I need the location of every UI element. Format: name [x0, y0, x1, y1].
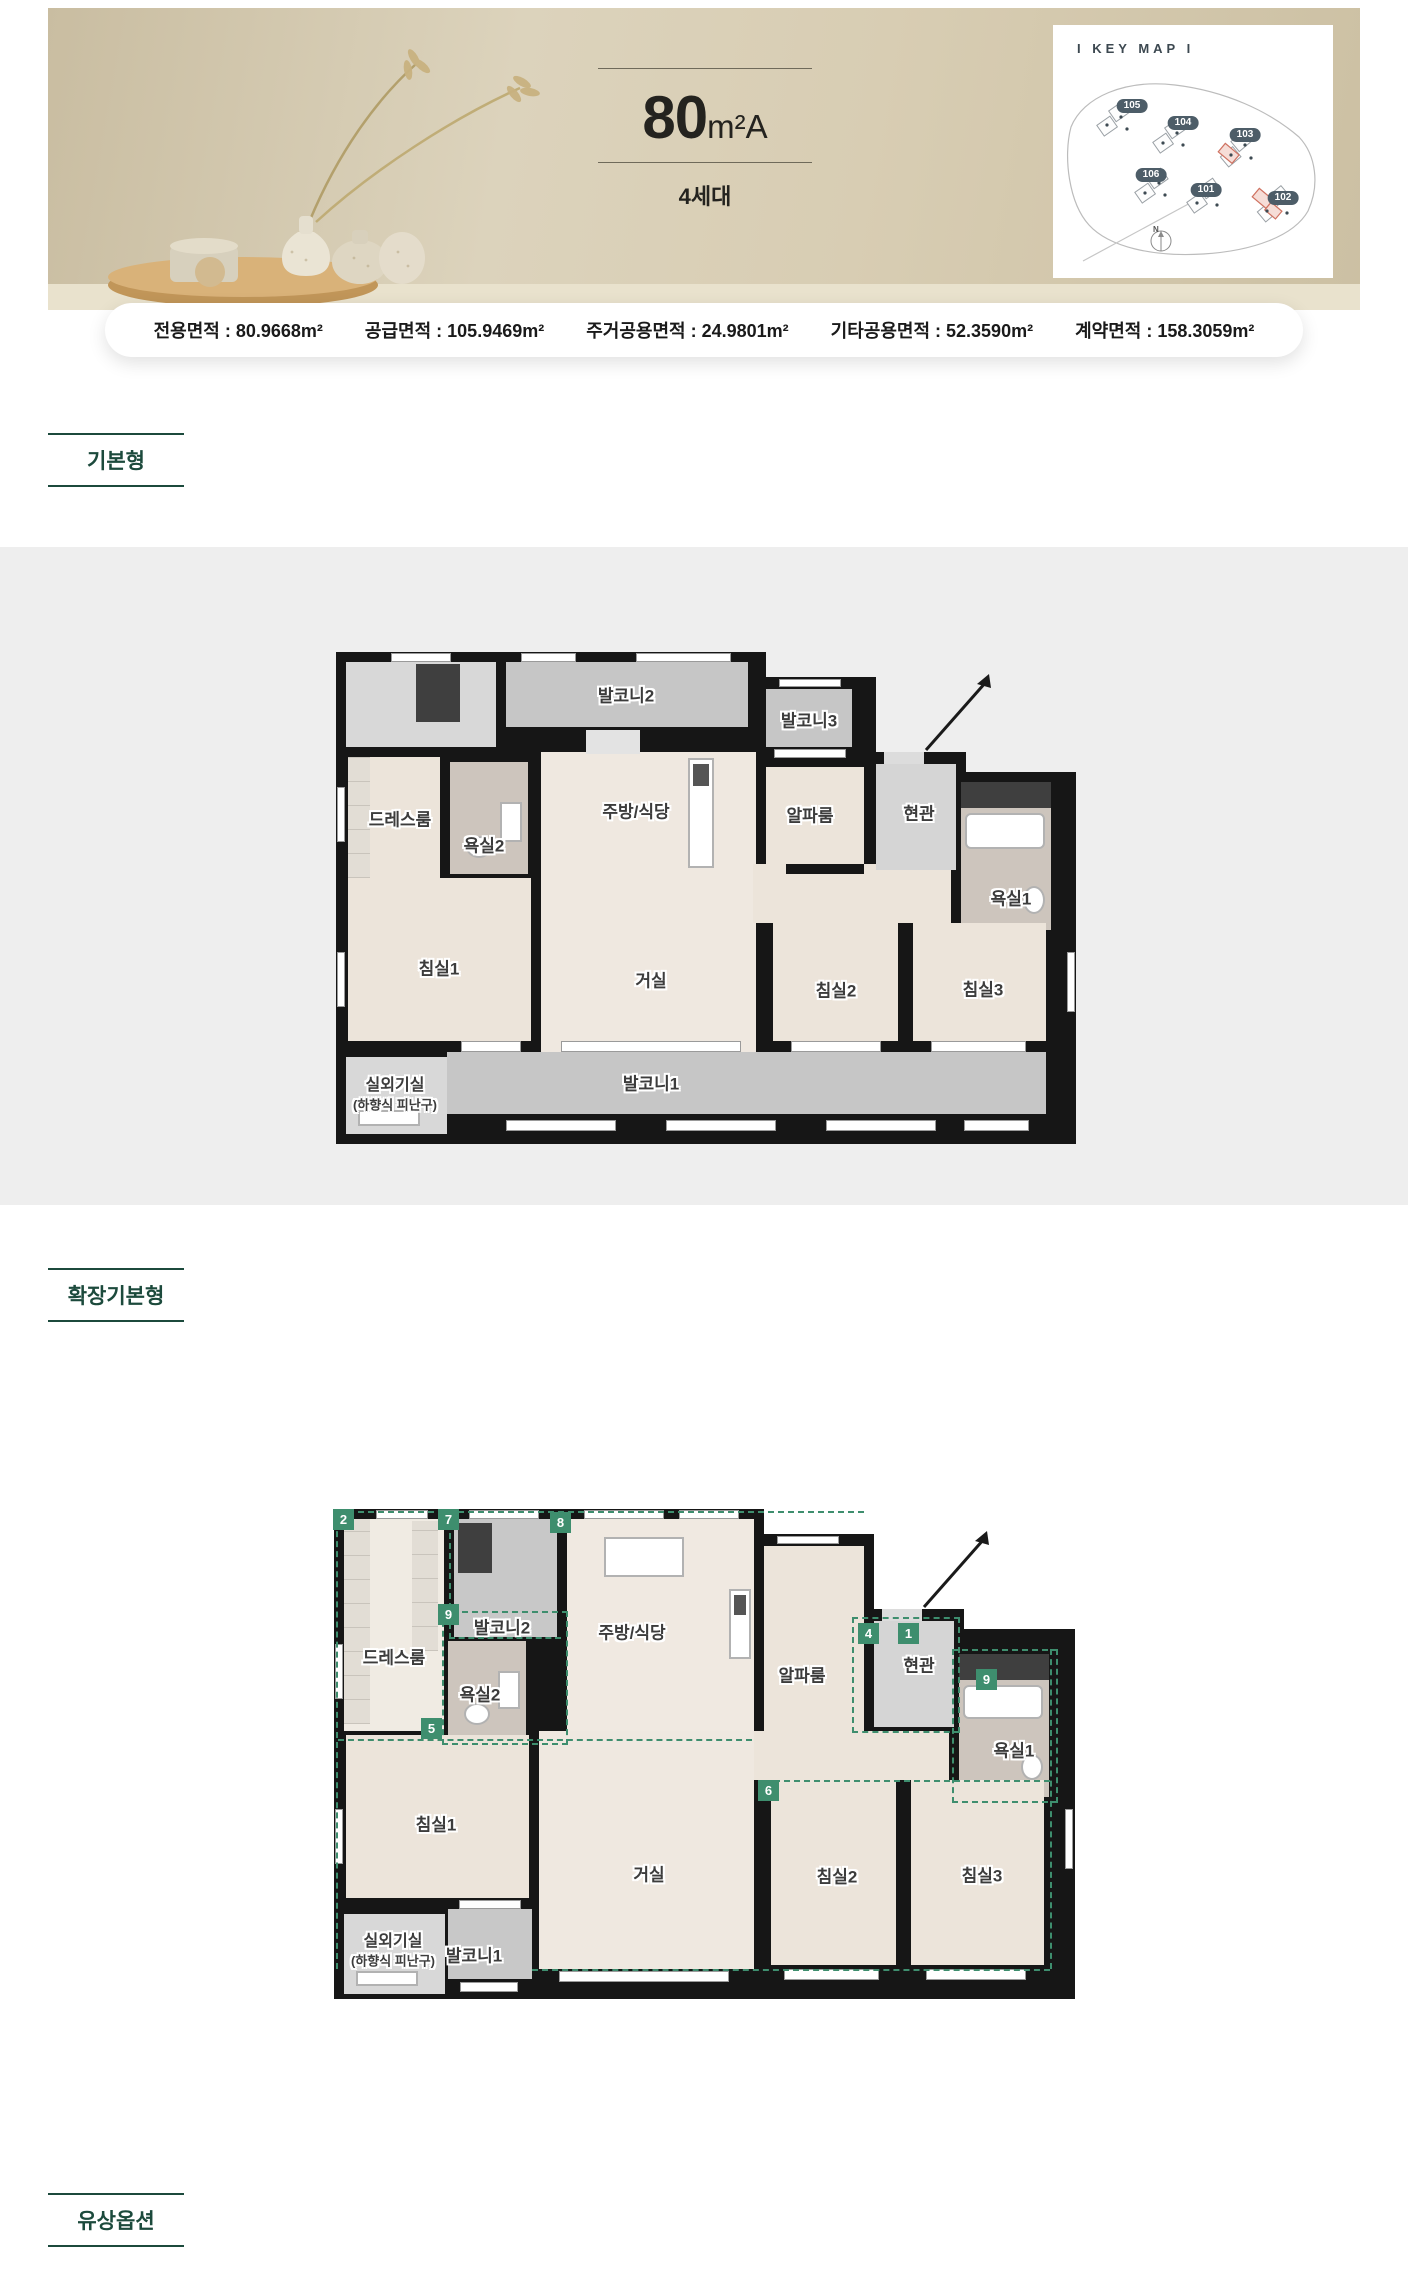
- room-label-balcony3: 발코니3: [781, 707, 837, 732]
- room-label-bed3: 침실3: [962, 1862, 1003, 1887]
- room-label-outdoor-unit: 실외기실: [366, 1071, 425, 1095]
- window: [931, 1041, 1026, 1052]
- option-badge: 5: [421, 1718, 442, 1739]
- closet-box: [961, 782, 1051, 808]
- room-label-bed1: 침실1: [416, 1811, 457, 1836]
- closet-box: [458, 1523, 492, 1573]
- option-badge: 4: [858, 1623, 879, 1644]
- title-divider-bottom: [598, 162, 812, 163]
- window: [666, 1120, 776, 1131]
- floor-plan-extended: 2 7 8 9 5 4 1 9 6 드레스룸 발코니2 주방/식당 욕실2 알파…: [334, 1509, 1075, 2009]
- window: [774, 749, 846, 758]
- window: [826, 1120, 936, 1131]
- bathtub-fixture: [965, 813, 1045, 849]
- compass-north-label: N: [1153, 225, 1159, 234]
- room-bath2: [450, 762, 528, 874]
- room-label-kitchen: 주방/식당: [598, 1619, 665, 1644]
- room-label-living: 거실: [633, 1861, 664, 1886]
- window: [559, 1971, 729, 1982]
- balcony-door-opening: [586, 730, 640, 754]
- window: [459, 1900, 521, 1909]
- unit-size-number: 80: [642, 84, 707, 151]
- building-badge-104: 104: [1168, 116, 1199, 130]
- window: [460, 1982, 518, 1992]
- room-label-bed2: 침실2: [816, 977, 857, 1002]
- key-map-title: I KEY MAP I: [1077, 41, 1194, 56]
- expansion-dashed-box: [442, 1611, 568, 1745]
- unit-type-title: 80m²A: [598, 69, 812, 162]
- room-alpha: [764, 1546, 864, 1731]
- room-label-balcony1: 발코니1: [446, 1942, 502, 1967]
- entrance-arrow-icon: [881, 670, 1021, 755]
- area-item-shared-residential: 주거공용면적 : 24.9801m²: [586, 317, 788, 343]
- room-label-bath2: 욕실2: [464, 832, 505, 857]
- expansion-dashed-line: [764, 1780, 1050, 1782]
- room-label-entry: 현관: [903, 800, 934, 825]
- section-label-basic: 기본형: [48, 433, 184, 487]
- room-label-bed1: 침실1: [419, 955, 460, 980]
- option-badge: 9: [438, 1604, 459, 1625]
- expansion-dashed-line: [532, 1969, 1050, 1971]
- header-photo: 80m²A 4세대 I KEY MAP I: [48, 8, 1360, 310]
- entrance-arrow-icon: [879, 1527, 1019, 1612]
- room-label-alpha: 알파룸: [779, 1662, 826, 1687]
- unit-size-suffix: m²A: [707, 108, 768, 145]
- option-badge: 9: [976, 1669, 997, 1690]
- closet-strip: [344, 1519, 370, 1724]
- area-item-supply: 공급면적 : 105.9469m²: [365, 317, 544, 343]
- window: [777, 1536, 839, 1544]
- room-label-balcony2: 발코니2: [598, 682, 654, 707]
- option-badge: 2: [333, 1509, 354, 1530]
- room-bath1: [961, 808, 1051, 930]
- room-label-living: 거실: [635, 967, 666, 992]
- window: [791, 1041, 881, 1052]
- household-count: 4세대: [598, 179, 812, 211]
- section-label-paid-option: 유상옵션: [48, 2193, 184, 2247]
- room-label-bath1: 욕실1: [991, 885, 1032, 910]
- room-label-bed2: 침실2: [817, 1863, 858, 1888]
- room-label-dressroom: 드레스룸: [369, 806, 432, 831]
- area-item-shared-other: 기타공용면적 : 52.3590m²: [831, 317, 1033, 343]
- window: [779, 679, 841, 687]
- window: [506, 1120, 616, 1131]
- room-closet-area: [346, 662, 496, 747]
- stove-fixture: [734, 1595, 746, 1615]
- room-label-outdoor-unit: 실외기실: [364, 1927, 423, 1951]
- option-badge: 6: [758, 1780, 779, 1801]
- room-label-bed3: 침실3: [963, 976, 1004, 1001]
- building-badge-105: 105: [1117, 99, 1148, 113]
- building-badge-102: 102: [1268, 191, 1299, 205]
- room-label-alpha: 알파룸: [787, 802, 834, 827]
- hallway: [751, 1731, 949, 1780]
- room-label-kitchen: 주방/식당: [602, 798, 669, 823]
- window: [337, 787, 345, 842]
- building-badge-101: 101: [1191, 183, 1222, 197]
- room-label-balcony1: 발코니1: [623, 1070, 679, 1095]
- closet-box: [416, 664, 460, 722]
- expansion-dashed-line: [338, 1739, 752, 1741]
- floor-plan-basic: 발코니2 발코니3 드레스룸 욕실2 주방/식당 알파룸 현관 욕실1 침실1 …: [336, 652, 1076, 1144]
- area-item-contract: 계약면적 : 158.3059m²: [1075, 317, 1254, 343]
- area-info-bar: 전용면적 : 80.9668m² 공급면적 : 105.9469m² 주거공용면…: [105, 303, 1303, 357]
- unit-type-title-block: 80m²A 4세대: [598, 68, 812, 211]
- room-label-dressroom: 드레스룸: [363, 1644, 426, 1669]
- kitchen-counter: [688, 758, 714, 868]
- room-dressroom: [344, 1519, 444, 1731]
- room-label-outdoor-unit-sub: (하향식 피난구): [353, 1095, 437, 1114]
- option-badge: 7: [438, 1509, 459, 1530]
- window: [964, 1120, 1029, 1131]
- stove-fixture: [693, 764, 709, 786]
- building-badge-106: 106: [1136, 168, 1167, 182]
- window: [391, 653, 451, 662]
- window: [1067, 952, 1075, 1012]
- room-balcony1: [447, 1052, 1046, 1114]
- site-map-icon: [1053, 25, 1333, 278]
- option-badge: 8: [550, 1512, 571, 1533]
- room-label-outdoor-unit-sub: (하향식 피난구): [351, 1951, 435, 1970]
- kitchen-island: [604, 1537, 684, 1577]
- window: [636, 653, 731, 662]
- window: [521, 653, 576, 662]
- compass-icon: [1151, 231, 1171, 251]
- window: [1065, 1809, 1073, 1869]
- area-item-exclusive: 전용면적 : 80.9668m²: [154, 317, 323, 343]
- kitchen-counter: [729, 1589, 751, 1659]
- closet-strip: [348, 757, 370, 878]
- outdoor-unit-fixture: [356, 1971, 418, 1986]
- section-label-extended: 확장기본형: [48, 1268, 184, 1322]
- wall-segment: [786, 864, 864, 874]
- expansion-dashed-line: [338, 1511, 864, 1513]
- window: [561, 1041, 741, 1052]
- window: [337, 952, 345, 1007]
- closet-strip: [412, 1521, 438, 1651]
- window: [461, 1041, 521, 1052]
- option-badge: 1: [898, 1623, 919, 1644]
- floorplan-page: 80m²A 4세대 I KEY MAP I: [0, 0, 1408, 2273]
- room-living: [539, 1731, 754, 1969]
- building-badge-103: 103: [1230, 128, 1261, 142]
- key-map: I KEY MAP I: [1053, 25, 1333, 278]
